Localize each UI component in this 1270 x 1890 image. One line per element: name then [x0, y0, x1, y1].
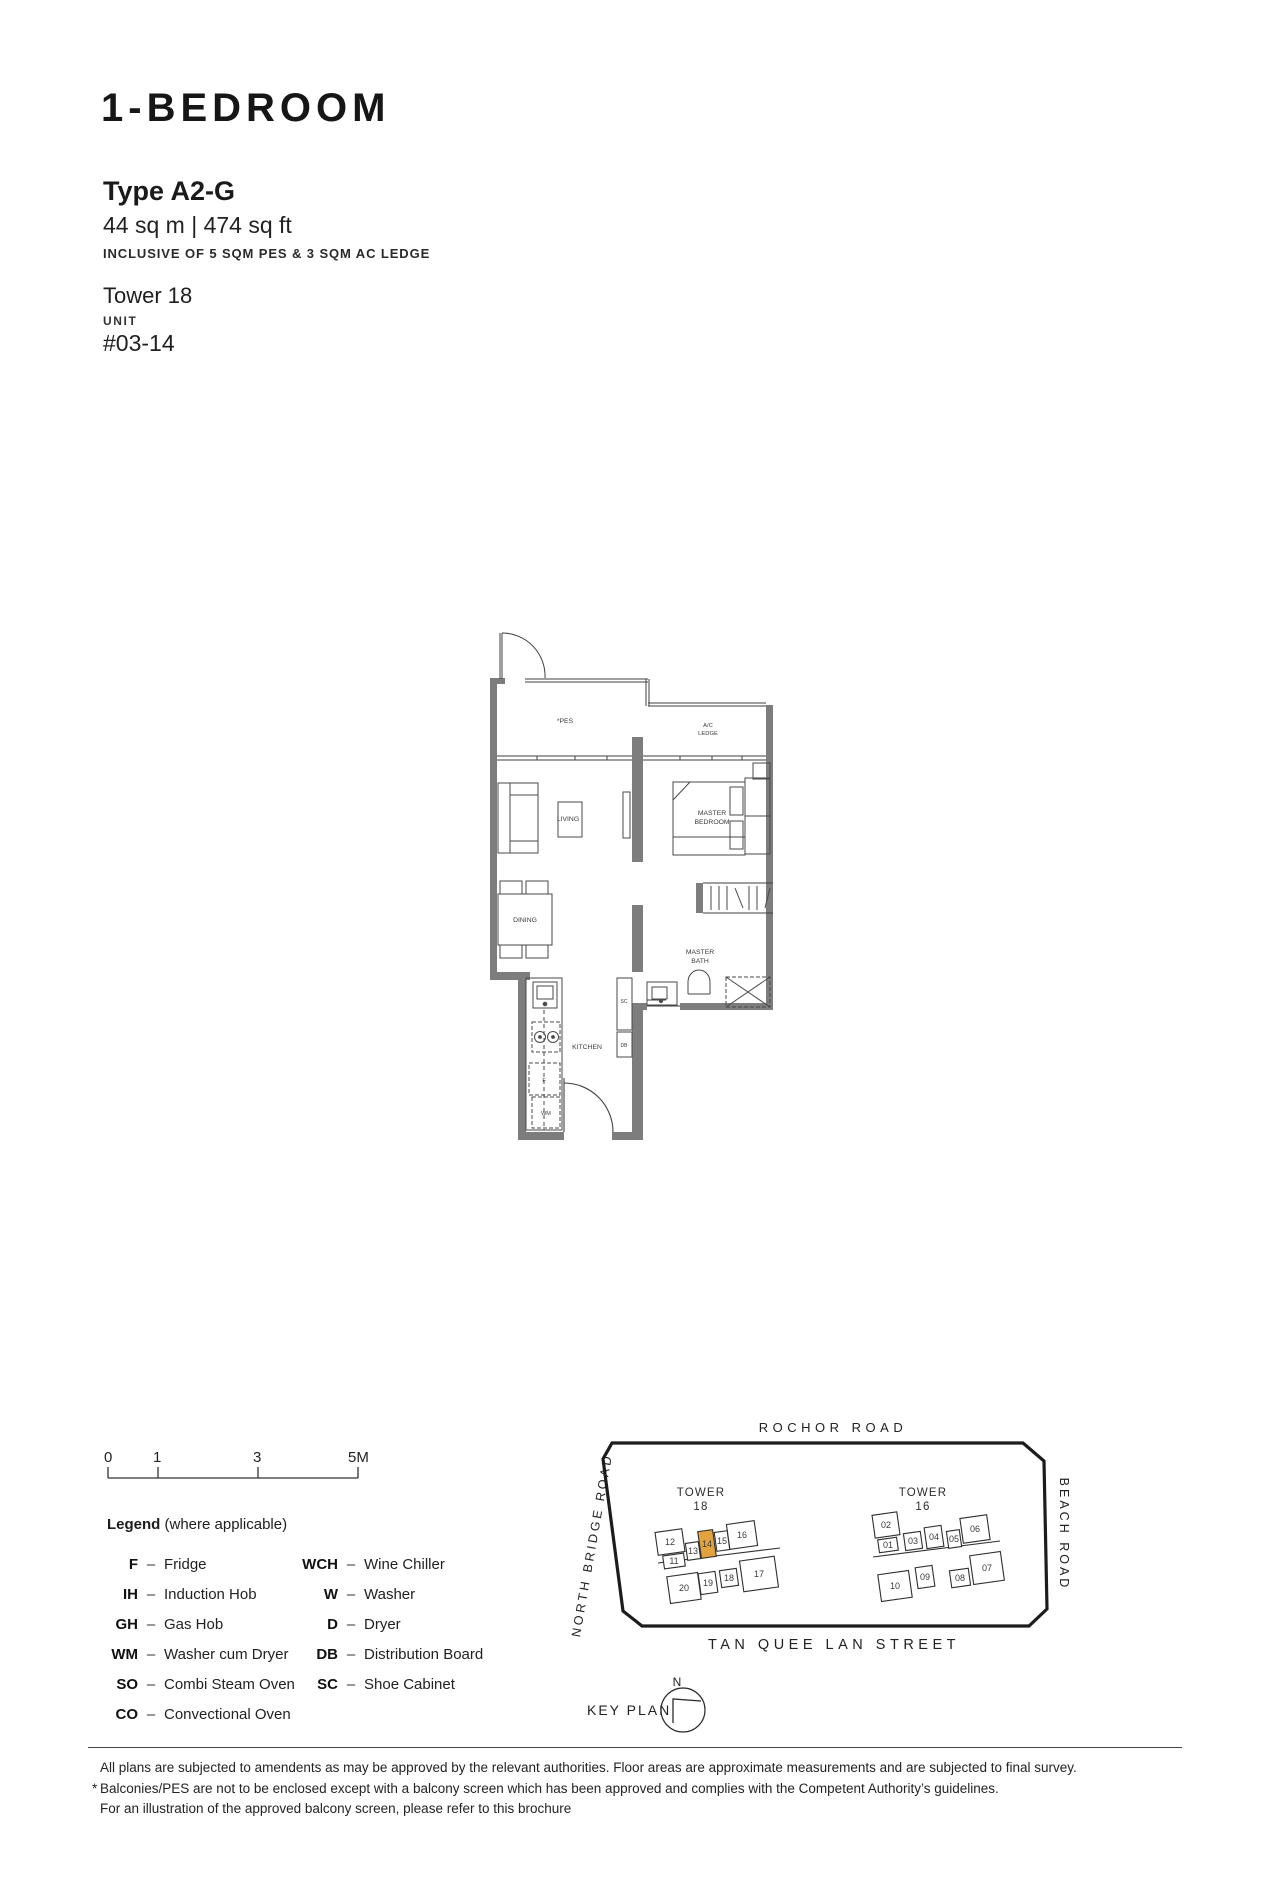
key-plan-label: KEY PLAN [587, 1702, 671, 1718]
pes-gate-leaf [500, 633, 502, 679]
unit-number-01: 01 [883, 1540, 893, 1550]
pes-label: *PES [557, 718, 574, 725]
legend: F–Fridge IH–Induction Hob GH–Gas Hob WM–… [96, 1556, 496, 1736]
scale-tick-5m: 5M [348, 1449, 369, 1466]
legend-abbr: WCH [296, 1556, 338, 1573]
legend-dash: – [138, 1616, 164, 1633]
legend-row: WCH–Wine Chiller [296, 1556, 516, 1586]
legend-abbr: F [96, 1556, 138, 1573]
unit-number-02: 02 [881, 1520, 891, 1530]
master-bedroom-label-2: BEDROOM [694, 819, 729, 826]
unit-number-15: 15 [717, 1536, 727, 1546]
unit-number-07: 07 [982, 1563, 992, 1573]
tv-console [623, 792, 630, 838]
pes-gate-arc [502, 633, 545, 678]
legend-dash: – [138, 1676, 164, 1693]
legend-abbr: DB [296, 1646, 338, 1663]
legend-dash: – [138, 1586, 164, 1603]
scale-tick-3: 3 [253, 1449, 261, 1466]
living-label: LIVING [557, 816, 579, 823]
legend-row: D–Dryer [296, 1616, 516, 1646]
legend-abbr: CO [96, 1706, 138, 1723]
legend-row: SC–Shoe Cabinet [296, 1676, 516, 1706]
unit-number-10: 10 [890, 1581, 900, 1591]
unit-number-14: 14 [702, 1539, 712, 1549]
unit-number-11: 11 [669, 1556, 678, 1566]
sofa [498, 783, 538, 853]
disclaimer-line-1: All plans are subjected to amendents as … [100, 1758, 1190, 1779]
hob [532, 1022, 560, 1052]
disclaimer: All plans are subjected to amendents as … [100, 1758, 1190, 1820]
legend-row: DB–Distribution Board [296, 1646, 516, 1676]
ac-ledge-label-2: LEDGE [698, 731, 718, 737]
legend-desc: Dryer [364, 1616, 516, 1633]
page-title: 1-BEDROOM [101, 86, 390, 131]
unit-number-18: 18 [724, 1573, 734, 1583]
scale-tick-0: 0 [104, 1449, 112, 1466]
master-bedroom-label-1: MASTER [698, 810, 726, 817]
legend-dash: – [338, 1616, 364, 1633]
unit-number-12: 12 [665, 1537, 675, 1547]
legend-dash: – [338, 1646, 364, 1663]
disclaimer-line-3: For an illustration of the approved balc… [100, 1799, 1190, 1820]
legend-abbr: SO [96, 1676, 138, 1693]
tower18-label-2: 18 [693, 1501, 708, 1513]
unit-number-17: 17 [754, 1569, 764, 1579]
master-bath-label-2: BATH [691, 958, 709, 965]
toilet [688, 970, 710, 994]
unit-number-20: 20 [679, 1583, 689, 1593]
unit-number-05: 05 [949, 1534, 959, 1544]
tower18-label-1: TOWER [677, 1487, 726, 1499]
legend-dash: – [138, 1706, 164, 1723]
legend-title: Legend (where applicable) [107, 1516, 287, 1533]
unit-type-label: Type A2-G [103, 176, 235, 207]
unit-number-09: 09 [920, 1572, 930, 1582]
legend-dash: – [138, 1646, 164, 1663]
entrance-door [564, 1078, 613, 1132]
key-plan: ROCHOR ROAD TAN QUEE LAN STREET NORTH BR… [570, 1415, 1190, 1760]
unit-area-label: 44 sq m | 474 sq ft [103, 212, 292, 239]
unit-number-08: 08 [955, 1573, 965, 1583]
brochure-page: 1-BEDROOM Type A2-G 44 sq m | 474 sq ft … [0, 0, 1270, 1890]
legend-dash: – [138, 1556, 164, 1573]
road-label-tan-quee-lan: TAN QUEE LAN STREET [708, 1637, 960, 1653]
tower-label: Tower 18 [103, 283, 192, 309]
disclaimer-line-2: *Balconies/PES are not to be enclosed ex… [100, 1779, 1190, 1800]
road-label-north-bridge: NORTH BRIDGE ROAD [570, 1452, 615, 1638]
scale-tick-1: 1 [153, 1449, 161, 1466]
legend-desc: Wine Chiller [364, 1556, 516, 1573]
scale-bar-labels: 0 1 3 5M [104, 1449, 369, 1466]
north-label: N [673, 1675, 682, 1689]
legend-dash: – [338, 1676, 364, 1693]
legend-abbr: WM [96, 1646, 138, 1663]
tower16-label-2: 16 [915, 1501, 930, 1513]
floor-plan-walls [490, 678, 773, 1140]
legend-title-sub: (where applicable) [165, 1516, 288, 1533]
fridge-label: F [542, 1078, 546, 1084]
legend-abbr: SC [296, 1676, 338, 1693]
hanger-strip [711, 886, 770, 910]
unit-number-03: 03 [908, 1536, 918, 1546]
disclaimer-line-2-text: Balconies/PES are not to be enclosed exc… [100, 1781, 999, 1796]
road-label-rochor: ROCHOR ROAD [759, 1420, 907, 1435]
legend-dash: – [338, 1556, 364, 1573]
tower16-label-1: TOWER [899, 1487, 948, 1499]
legend-row: W–Washer [296, 1586, 516, 1616]
db-label: DB [621, 1043, 629, 1049]
unit-number-04: 04 [929, 1532, 939, 1542]
area-inclusive-note: INCLUSIVE OF 5 SQM PES & 3 SQM AC LEDGE [103, 246, 430, 261]
sc-label: SC [621, 999, 628, 1005]
legend-abbr: GH [96, 1616, 138, 1633]
legend-desc: Shoe Cabinet [364, 1676, 516, 1693]
wm-label: WM [541, 1111, 551, 1117]
disclaimer-asterisk: * [92, 1779, 97, 1800]
legend-desc: Distribution Board [364, 1646, 516, 1663]
legend-col2: WCH–Wine Chiller W–Washer D–Dryer DB–Dis… [296, 1556, 516, 1706]
footer-divider [88, 1747, 1182, 1748]
kitchen-label: KITCHEN [572, 1044, 602, 1051]
unit-number-06: 06 [970, 1524, 980, 1534]
ac-ledge-label-1: A/C [703, 723, 713, 729]
legend-abbr: W [296, 1586, 338, 1603]
scale-bar: 0 1 3 5M [100, 1448, 390, 1484]
legend-dash: – [338, 1586, 364, 1603]
unit-heading: UNIT [103, 314, 137, 328]
unit-number-13: 13 [688, 1546, 698, 1556]
unit-number-19: 19 [703, 1578, 713, 1588]
legend-desc: Convectional Oven [164, 1706, 496, 1723]
unit-number: #03-14 [103, 330, 175, 357]
vanity-sink [647, 982, 677, 1005]
shower [726, 977, 770, 1007]
legend-abbr: D [296, 1616, 338, 1633]
master-bath-label-1: MASTER [686, 949, 714, 956]
floor-plan: *PES A/C LEDGE LIVING MASTER BEDROOM DIN… [480, 615, 810, 1160]
legend-desc: Washer [364, 1586, 516, 1603]
kitchen-counter [526, 978, 562, 1130]
road-label-beach: BEACH ROAD [1057, 1478, 1071, 1591]
unit-number-16: 16 [737, 1530, 747, 1540]
legend-title-bold: Legend [107, 1516, 160, 1533]
legend-abbr: IH [96, 1586, 138, 1603]
dining-label: DINING [513, 917, 537, 924]
legend-row: CO–Convectional Oven [96, 1706, 496, 1736]
